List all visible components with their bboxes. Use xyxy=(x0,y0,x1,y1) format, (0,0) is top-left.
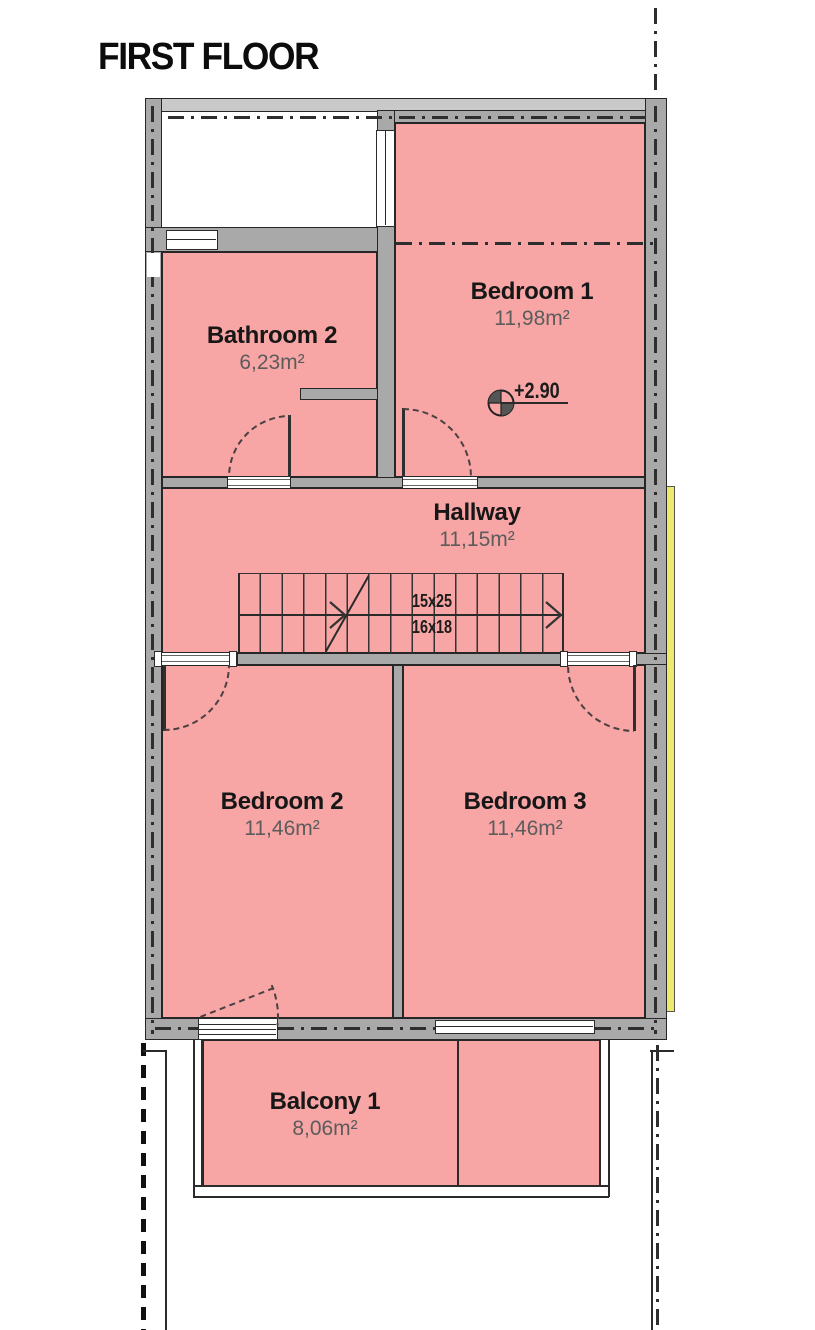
jamb-bedroom3-left xyxy=(560,651,568,667)
jamb-bedroom2-right xyxy=(229,651,237,667)
balcony-divider xyxy=(457,1040,459,1186)
label-balcony1: Balcony 1 8,06m² xyxy=(205,1088,445,1142)
room-name: Balcony 1 xyxy=(205,1088,445,1115)
label-bedroom3: Bedroom 3 11,46m² xyxy=(405,788,645,842)
door-threshold-bedroom3b xyxy=(568,661,629,662)
window-bedroom3 xyxy=(435,1020,595,1034)
room-name: Bedroom 3 xyxy=(405,788,645,815)
jamb-bedroom2-left xyxy=(154,651,162,667)
balcony-rail-right-outer xyxy=(608,1040,610,1197)
wall-hallway-top-a xyxy=(162,477,228,488)
door-threshold-bedroom1 xyxy=(403,479,477,480)
label-bathroom2: Bathroom 2 6,23m² xyxy=(152,322,392,376)
balcony-rail-left-outer xyxy=(193,1040,195,1197)
stair-left-edge xyxy=(238,573,240,653)
label-bedroom1: Bedroom 1 11,98m² xyxy=(412,278,652,332)
centerline-bottom-wall-a xyxy=(155,1027,198,1030)
door-threshold-bedroom2b xyxy=(162,661,229,662)
centerline-party-wall-above xyxy=(654,8,657,96)
neighbor-terrace-dashed-left xyxy=(141,1043,146,1330)
centerline-right-wall xyxy=(654,106,657,1034)
page-title: FIRST FLOOR xyxy=(98,36,318,79)
room-area: 8,06m² xyxy=(205,1115,445,1142)
stair-dimension-bottom: 16x18 xyxy=(412,618,452,636)
door-threshold-bedroom1b xyxy=(403,485,477,486)
door-threshold-bedroom3 xyxy=(568,655,629,656)
neighbor-centerline-right xyxy=(656,1045,659,1330)
door-threshold-bathroom xyxy=(228,479,290,480)
floor-plan: 15x25 16x18 xyxy=(0,0,815,1330)
centerline-bedroom1 xyxy=(396,242,656,245)
balcony-rail-bottom-outer xyxy=(193,1196,609,1198)
centerline-bottom-wall-c xyxy=(595,1027,657,1030)
party-wall-insulation-strip xyxy=(666,486,675,1012)
room-area: 11,46m² xyxy=(162,815,402,842)
neighbor-terrace-line-right xyxy=(651,1051,653,1330)
label-bedroom2: Bedroom 2 11,46m² xyxy=(162,788,402,842)
wall-hallway-bottom-center xyxy=(237,653,563,665)
stair-exit-arrow-icon xyxy=(544,600,564,630)
level-marker-value: +2.90 xyxy=(514,378,560,404)
balcony-rail-left-inner xyxy=(201,1040,203,1187)
room-name: Bathroom 2 xyxy=(152,322,392,349)
centerline-top-wall xyxy=(168,116,646,119)
neighbor-terrace-tick-left xyxy=(143,1050,167,1052)
stair-dimension-top: 15x25 xyxy=(412,592,452,610)
label-hallway: Hallway 11,15m² xyxy=(357,499,597,553)
room-name: Bedroom 2 xyxy=(162,788,402,815)
neighbor-terrace-line-left xyxy=(165,1051,167,1330)
wall-hallway-bottom-right xyxy=(633,653,667,665)
room-area: 6,23m² xyxy=(152,349,392,376)
window-void-bathroom2 xyxy=(166,230,218,250)
wall-hallway-top-b xyxy=(290,477,403,488)
room-area: 11,15m² xyxy=(357,526,597,553)
room-name: Bedroom 1 xyxy=(412,278,652,305)
neighbor-terrace-tick-right xyxy=(650,1050,674,1052)
room-name: Hallway xyxy=(357,499,597,526)
wall-bathroom-stub xyxy=(300,388,378,400)
wall-slot-left xyxy=(147,253,160,277)
centerline-bottom-wall-b xyxy=(278,1027,435,1030)
room-area: 11,98m² xyxy=(412,305,652,332)
wall-hallway-top-c xyxy=(477,477,645,488)
door-threshold-bathroom2 xyxy=(228,485,290,486)
balcony-rail-bottom-inner xyxy=(193,1185,609,1187)
window-void-bedroom1 xyxy=(376,130,395,227)
balcony-rail-right-inner xyxy=(599,1040,601,1187)
centerline-left-wall xyxy=(151,106,154,1034)
door-threshold-bedroom2 xyxy=(162,655,229,656)
staircase xyxy=(238,573,563,653)
room-area: 11,46m² xyxy=(405,815,645,842)
stair-walkline xyxy=(238,614,563,616)
